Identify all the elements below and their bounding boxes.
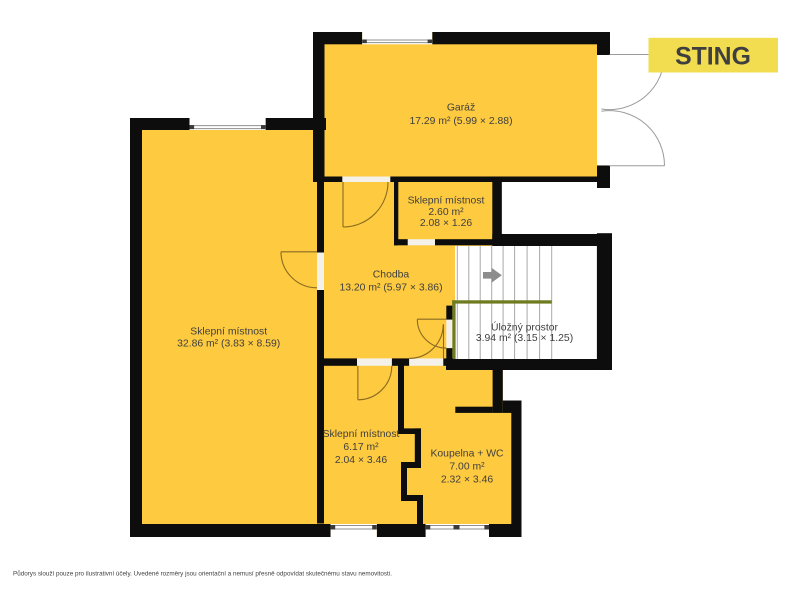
- svg-text:7.00 m²: 7.00 m²: [449, 462, 485, 473]
- svg-text:2.60 m²: 2.60 m²: [428, 207, 464, 218]
- svg-text:Sklepní místnost: Sklepní místnost: [408, 195, 485, 206]
- svg-text:Garáž: Garáž: [447, 102, 475, 113]
- svg-text:Sklepní místnost: Sklepní místnost: [190, 326, 267, 337]
- svg-text:32.86 m² (3.83 × 8.59): 32.86 m² (3.83 × 8.59): [177, 338, 280, 349]
- svg-text:Koupelna + WC: Koupelna + WC: [430, 448, 504, 459]
- svg-text:STING: STING: [675, 44, 751, 71]
- svg-text:Půdorys slouží pouze pro ilust: Půdorys slouží pouze pro ilustrativní úč…: [13, 570, 392, 578]
- svg-text:Sklepní místnost: Sklepní místnost: [323, 429, 400, 440]
- svg-text:2.32 × 3.46: 2.32 × 3.46: [441, 475, 494, 486]
- svg-text:6.17 m²: 6.17 m²: [343, 442, 379, 453]
- svg-text:3.94 m² (3.15 × 1.25): 3.94 m² (3.15 × 1.25): [476, 333, 573, 344]
- svg-text:17.29 m² (5.99 × 2.88): 17.29 m² (5.99 × 2.88): [409, 116, 512, 127]
- svg-text:13.20 m² (5.97 × 3.86): 13.20 m² (5.97 × 3.86): [339, 282, 442, 293]
- svg-text:2.04 × 3.46: 2.04 × 3.46: [335, 455, 388, 466]
- svg-text:Úložný prostor: Úložný prostor: [491, 320, 559, 333]
- svg-text:2.08 × 1.26: 2.08 × 1.26: [420, 218, 473, 229]
- svg-text:Chodba: Chodba: [373, 269, 410, 280]
